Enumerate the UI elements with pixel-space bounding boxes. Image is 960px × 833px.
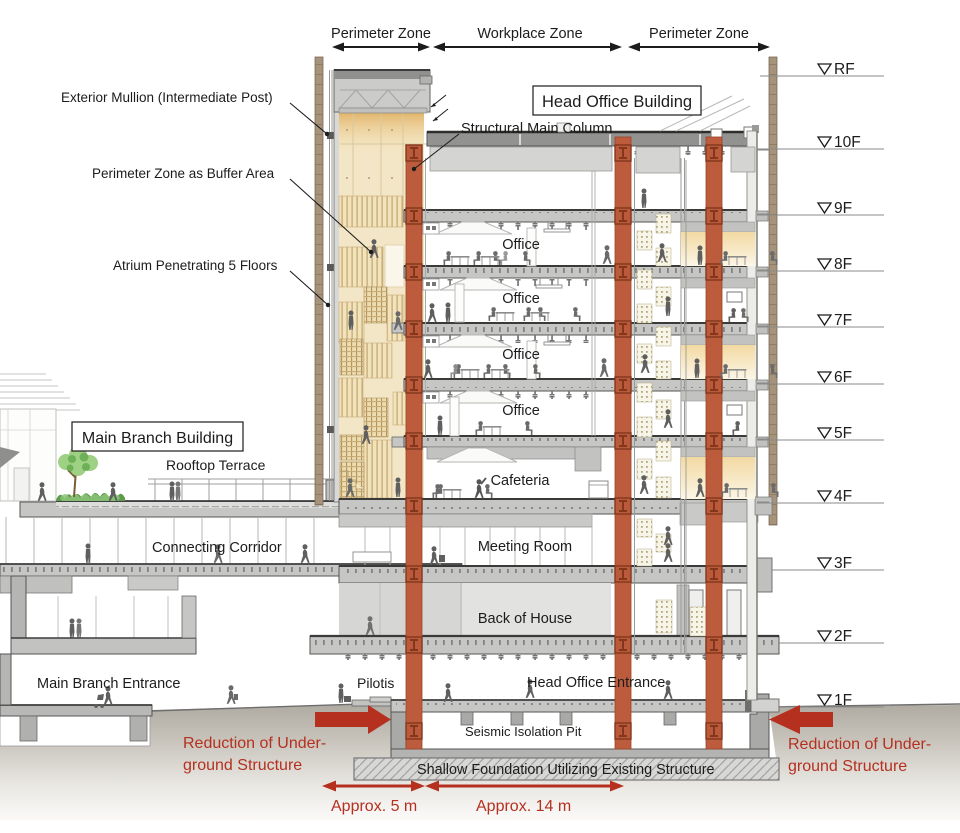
svg-text:Meeting Room: Meeting Room [478,539,572,555]
svg-text:Pilotis: Pilotis [357,675,394,691]
svg-text:Workplace Zone: Workplace Zone [477,26,582,42]
svg-text:ground Structure: ground Structure [788,758,907,775]
svg-text:Main Branch Entrance: Main Branch Entrance [37,676,180,692]
svg-text:Rooftop Terrace: Rooftop Terrace [166,457,266,473]
svg-text:8F: 8F [834,256,852,273]
svg-text:4F: 4F [834,488,852,505]
svg-text:6F: 6F [834,369,852,386]
svg-text:Connecting Corridor: Connecting Corridor [152,540,282,556]
svg-text:Seismic Isolation Pit: Seismic Isolation Pit [465,724,582,739]
svg-text:Back of House: Back of House [478,611,572,627]
svg-text:ground Structure: ground Structure [183,757,302,774]
svg-text:2F: 2F [834,628,852,645]
svg-text:Exterior Mullion (Intermediate: Exterior Mullion (Intermediate Post) [61,90,273,105]
svg-text:RF: RF [834,61,855,78]
svg-text:Perimeter Zone as Buffer Area: Perimeter Zone as Buffer Area [92,166,275,181]
svg-text:Structural Main Column: Structural Main Column [461,121,613,137]
svg-text:Office: Office [502,291,540,307]
svg-text:Office: Office [502,237,540,253]
svg-text:1F: 1F [834,692,852,709]
svg-text:Atrium Penetrating 5 Floors: Atrium Penetrating 5 Floors [113,258,278,273]
svg-text:Perimeter Zone: Perimeter Zone [649,26,749,42]
svg-text:Approx. 14 m: Approx. 14 m [476,798,571,815]
svg-text:Main Branch Building: Main Branch Building [82,430,233,447]
svg-text:Head Office Entrance: Head Office Entrance [527,675,665,691]
svg-text:10F: 10F [834,134,861,151]
svg-text:3F: 3F [834,555,852,572]
svg-text:Perimeter Zone: Perimeter Zone [331,26,431,42]
svg-text:5F: 5F [834,425,852,442]
svg-text:7F: 7F [834,312,852,329]
svg-text:9F: 9F [834,200,852,217]
svg-text:Office: Office [502,403,540,419]
svg-text:Cafeteria: Cafeteria [491,473,551,489]
svg-text:Head Office Building: Head Office Building [542,93,692,111]
svg-text:Reduction of Under-: Reduction of Under- [183,735,326,752]
svg-text:Approx. 5 m: Approx. 5 m [331,798,417,815]
svg-text:Shallow Foundation Utilizing E: Shallow Foundation Utilizing Existing St… [417,762,715,778]
svg-text:Reduction of Under-: Reduction of Under- [788,736,931,753]
svg-text:Office: Office [502,347,540,363]
